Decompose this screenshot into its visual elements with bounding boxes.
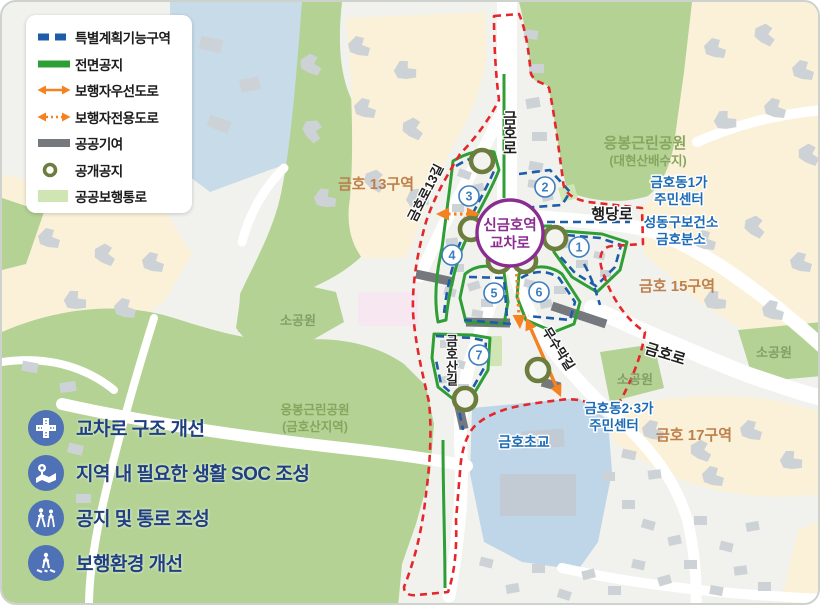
label-center-23ga-line2: 주민센터	[589, 417, 639, 433]
goal-item-open-space: 공지 및 통로 조성	[28, 495, 309, 540]
legend-label: 공공보행통로	[75, 186, 147, 206]
label-park-ne-line2: (대현산배수지)	[609, 153, 686, 168]
label-school: 금호초교	[498, 434, 550, 450]
legend-item-contribution: 공공기여	[37, 130, 192, 157]
road-label-haengdang-ro: 행당로	[591, 205, 633, 223]
zone-badge-4: 4	[442, 245, 462, 265]
station-name-line2: 교차로	[490, 235, 530, 252]
zone-badge-7: 7	[469, 345, 489, 365]
label-sopark-left: 소공원	[280, 313, 316, 328]
double-arrow-solid-swatch	[37, 83, 75, 97]
label-center-23ga-line1: 금호동2·3가	[584, 401, 654, 416]
zone-number: 2	[542, 181, 549, 195]
legend-label: 보행자우선도로	[75, 80, 158, 100]
zone-number: 5	[491, 287, 498, 301]
label-district-13: 금호 13구역	[338, 176, 414, 193]
legend-item-pedestrian-priority: 보행자우선도로	[37, 77, 192, 104]
station-badge: 신금호역 교차로	[477, 200, 543, 266]
label-sopark-right: 소공원	[756, 345, 792, 360]
goal-item-walk-env: 보행환경 개선	[28, 540, 309, 585]
ring-swatch	[37, 162, 75, 178]
label-health-center-line2: 금호분소	[656, 232, 706, 247]
zone-number: 1	[576, 241, 583, 255]
intersection-icon	[28, 410, 64, 446]
dashed-line-swatch	[37, 30, 75, 44]
legend-item-frontage: 전면공지	[37, 51, 192, 78]
goal-item-soc: 지역 내 필요한 생활 SOC 조성	[28, 450, 309, 495]
legend-label: 공공기여	[75, 133, 123, 153]
pedestrian-crossing-icon	[28, 545, 64, 581]
fill-swatch	[37, 188, 75, 204]
goal-label: 공지 및 통로 조성	[76, 504, 209, 531]
label-health-center-line1: 성동구보건소	[644, 214, 719, 230]
map-pin-icon	[28, 455, 64, 491]
zone-number: 3	[466, 190, 473, 204]
goals-list: 교차로 구조 개선 지역 내 필요한 생활 SOC 조성 공지 및 통로 조성	[28, 405, 309, 585]
zone-number: 7	[476, 349, 483, 363]
zone-badge-2: 2	[535, 177, 555, 197]
label-district-17: 금호 17구역	[656, 427, 732, 444]
goal-label: 보행환경 개선	[76, 549, 183, 576]
zone-badge-3: 3	[459, 186, 479, 206]
legend-item-pedestrian-only: 보행자전용도로	[37, 104, 192, 131]
label-district-15: 금호 15구역	[639, 278, 715, 295]
label-center-1ga-line2: 주민센터	[654, 191, 704, 207]
legend-label: 공개공지	[75, 160, 123, 180]
label-sopark-mid: 소공원	[617, 372, 653, 387]
legend: 특별계획기능구역 전면공지 보행자우선도로 보행자전용도로 공공기여 공개공지	[26, 15, 192, 213]
planning-map-page: 1 2 3 4 5 6 7 신금호역 교차로	[0, 0, 820, 605]
label-center-1ga-line1: 금호동1가	[650, 175, 708, 190]
goal-label: 지역 내 필요한 생활 SOC 조성	[76, 459, 309, 486]
legend-item-special-plan: 특별계획기능구역	[37, 24, 192, 51]
thick-line-swatch	[37, 136, 75, 150]
people-walking-icon	[28, 500, 64, 536]
area-pink-patch	[358, 292, 418, 326]
zone-badge-5: 5	[484, 283, 504, 303]
goal-item-intersection: 교차로 구조 개선	[28, 405, 309, 450]
station-name-line1: 신금호역	[483, 217, 536, 234]
road-label-geumho-ro-top: 금호로	[501, 110, 518, 155]
road-label-geumho-san-gil: 금호산길	[444, 334, 459, 387]
goal-label: 교차로 구조 개선	[76, 414, 204, 441]
double-arrow-dotted-swatch	[37, 110, 75, 124]
legend-label: 특별계획기능구역	[75, 27, 170, 47]
solid-line-swatch	[37, 57, 75, 71]
zone-number: 6	[536, 286, 543, 300]
legend-item-open-space: 공개공지	[37, 157, 192, 184]
zone-number: 4	[449, 249, 456, 263]
zone-badge-1: 1	[569, 237, 589, 257]
zone-badge-6: 6	[529, 282, 549, 302]
legend-label: 전면공지	[75, 54, 123, 74]
legend-item-walkway: 공공보행통로	[37, 183, 192, 210]
label-park-ne-line1: 응봉근린공원	[604, 134, 687, 152]
legend-label: 보행자전용도로	[75, 107, 158, 127]
